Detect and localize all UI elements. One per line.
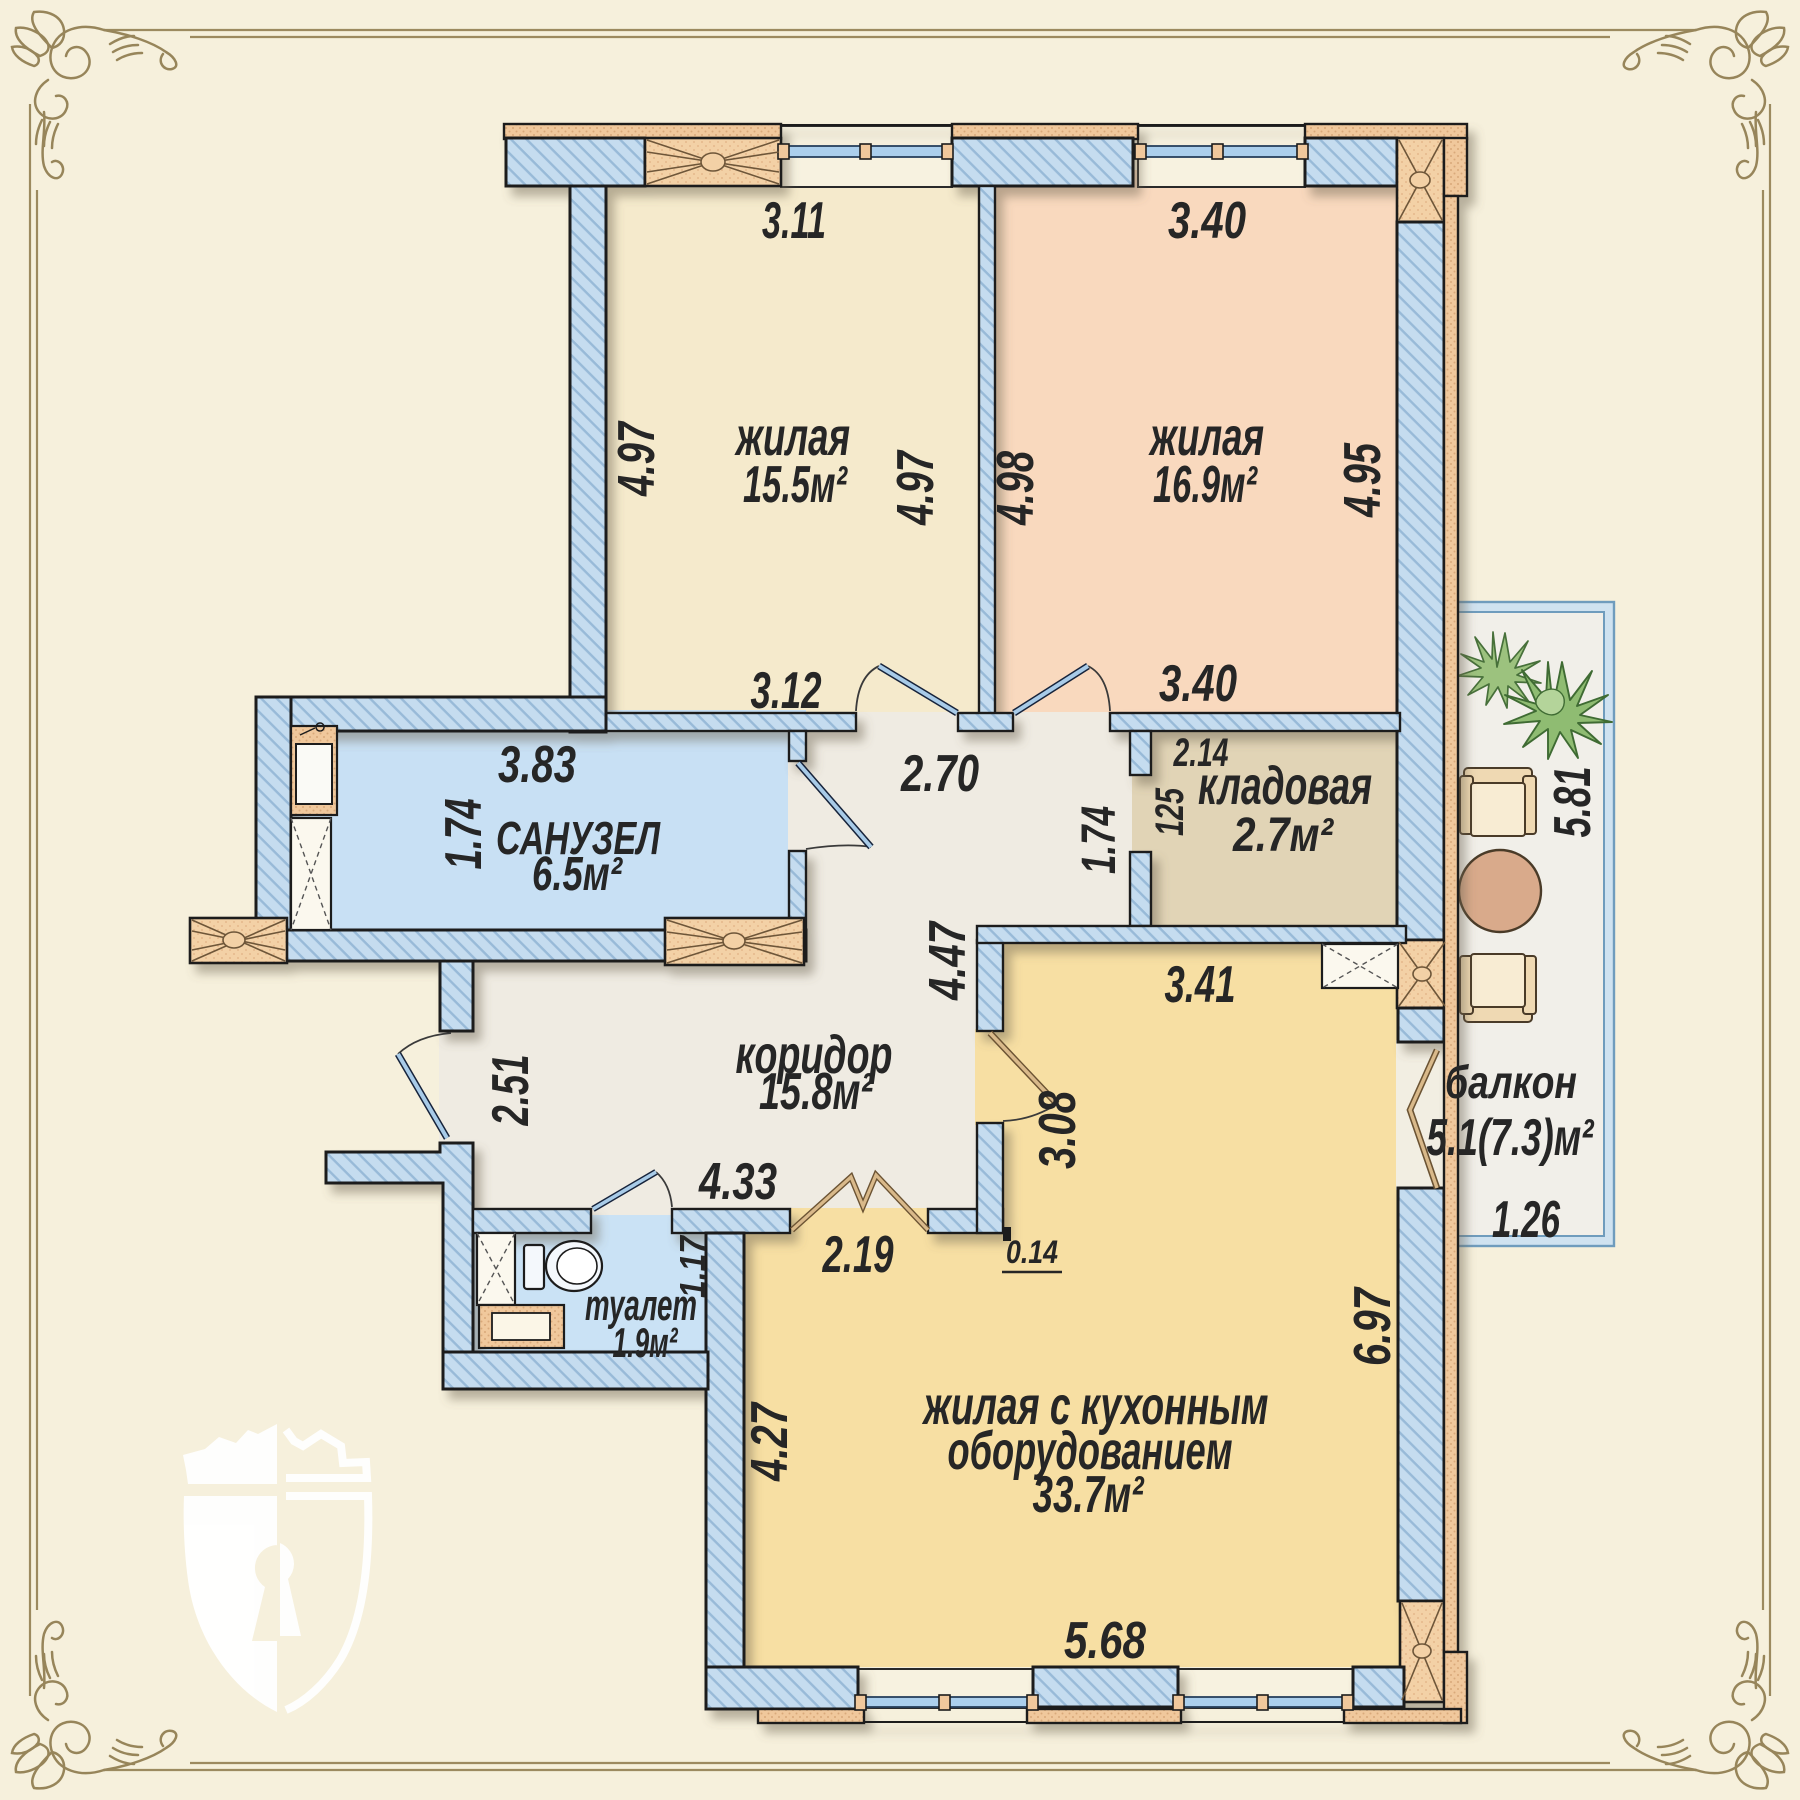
svg-text:5.1(7.3)м²: 5.1(7.3)м² [1427,1109,1595,1167]
svg-text:3.12: 3.12 [751,662,822,720]
svg-text:балкон: балкон [1445,1056,1577,1108]
svg-text:3.40: 3.40 [1159,655,1237,713]
svg-text:1.26: 1.26 [1492,1191,1561,1249]
svg-text:2.7м²: 2.7м² [1232,809,1335,862]
svg-text:2.19: 2.19 [822,1226,894,1284]
svg-text:15.8м²: 15.8м² [759,1063,874,1121]
svg-text:4.27: 4.27 [741,1401,799,1481]
svg-text:3.11: 3.11 [762,192,826,250]
svg-text:33.7м²: 33.7м² [1033,1466,1145,1524]
svg-text:4.33: 4.33 [698,1153,777,1211]
svg-text:4.95: 4.95 [1334,442,1392,518]
svg-text:1.17: 1.17 [672,1234,713,1298]
svg-text:5.81: 5.81 [1544,767,1602,838]
svg-text:1.74: 1.74 [1073,806,1126,874]
svg-text:3.40: 3.40 [1168,192,1246,250]
svg-text:2.51: 2.51 [482,1055,540,1127]
svg-text:1.74: 1.74 [435,798,493,869]
svg-text:0.14: 0.14 [1006,1234,1058,1270]
svg-text:15.5м²: 15.5м² [743,456,848,514]
svg-text:кладовая: кладовая [1198,756,1372,816]
svg-text:4.97: 4.97 [887,449,945,525]
svg-text:3.41: 3.41 [1165,956,1236,1014]
svg-text:4.47: 4.47 [919,920,977,1000]
svg-text:4.98: 4.98 [987,451,1045,526]
svg-text:125: 125 [1148,787,1192,836]
svg-text:1.9м²: 1.9м² [613,1319,679,1366]
svg-text:3.08: 3.08 [1029,1091,1087,1169]
svg-text:6.5м²: 6.5м² [532,848,624,901]
svg-text:5.68: 5.68 [1064,1612,1146,1670]
svg-text:6.97: 6.97 [1344,1286,1402,1366]
svg-text:2.70: 2.70 [900,745,979,803]
svg-text:4.97: 4.97 [608,420,666,496]
svg-text:16.9м²: 16.9м² [1153,456,1258,514]
svg-text:3.83: 3.83 [498,736,576,794]
